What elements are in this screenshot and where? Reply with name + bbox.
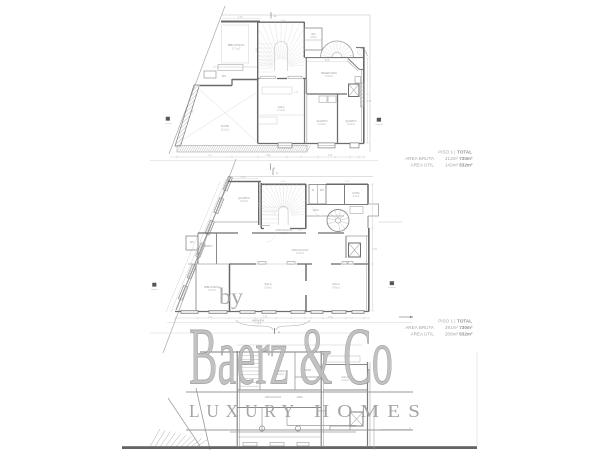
svg-text:4.15: 4.15 [241, 177, 246, 179]
svg-text:SUITE: SUITE [221, 124, 229, 128]
svg-text:11.5m2: 11.5m2 [208, 290, 216, 292]
svg-text:PISO 1 |: PISO 1 | [438, 150, 455, 155]
svg-text:QUARTO: QUARTO [238, 196, 249, 200]
svg-text:QUARTO: QUARTO [316, 119, 327, 123]
svg-text:QUARTO: QUARTO [345, 119, 356, 123]
svg-text:AREA BRUTA: AREA BRUTA [405, 156, 435, 161]
svg-text:IS: IS [312, 189, 315, 192]
svg-text:15.5m2: 15.5m2 [325, 76, 333, 78]
svg-text:WC: WC [320, 189, 324, 192]
svg-text:213m²: 213m² [445, 156, 458, 161]
svg-text:10.9m2: 10.9m2 [347, 124, 355, 126]
svg-text:PISO 1 |: PISO 1 | [438, 319, 455, 324]
svg-text:A: A [276, 171, 278, 175]
svg-text:CIRCULACAO: CIRCULACAO [275, 228, 292, 232]
svg-text:CIRCULACAO: CIRCULACAO [291, 248, 308, 252]
svg-text:by: by [219, 284, 244, 309]
svg-text:5.08: 5.08 [325, 60, 330, 62]
svg-text:A: A [274, 14, 276, 18]
svg-text:17.2m2: 17.2m2 [277, 110, 285, 112]
svg-text:AREA UTIL: AREA UTIL [411, 332, 435, 337]
svg-text:SALA: SALA [278, 105, 285, 109]
svg-text:WC: WC [190, 241, 194, 244]
svg-text:REFEICOES: REFEICOES [321, 71, 337, 75]
svg-text:TOTAL: TOTAL [457, 150, 472, 155]
svg-text:15.9m2: 15.9m2 [240, 201, 248, 203]
svg-text:208m²: 208m² [445, 332, 458, 337]
svg-text:730m²: 730m² [459, 156, 473, 161]
svg-text:COPA: COPA [352, 191, 360, 195]
svg-text:11.8m2: 11.8m2 [318, 124, 326, 126]
svg-text:2.40: 2.40 [328, 155, 333, 157]
svg-text:A: A [273, 166, 275, 170]
svg-text:SALA: SALA [264, 282, 271, 286]
svg-text:BIBLIOTECA: BIBLIOTECA [228, 43, 245, 47]
svg-text:Baerz & Co: Baerz & Co [189, 311, 393, 402]
svg-text:24.6m2: 24.6m2 [332, 288, 340, 290]
svg-text:TOTAL: TOTAL [457, 319, 472, 324]
svg-text:142m²: 142m² [445, 163, 458, 168]
svg-text:LUXURY: LUXURY [189, 401, 301, 421]
svg-text:8.2m2: 8.2m2 [353, 196, 360, 198]
svg-text:SALA: SALA [332, 282, 339, 286]
svg-text:HOMES: HOMES [314, 401, 428, 421]
svg-text:WC: WC [311, 32, 315, 36]
svg-text:BIBLIOTECA: BIBLIOTECA [204, 285, 220, 289]
svg-text:291m²: 291m² [445, 325, 458, 330]
svg-text:WC: WC [222, 75, 226, 78]
svg-text:730m²: 730m² [459, 325, 473, 330]
svg-text:27.5 m2: 27.5 m2 [232, 48, 241, 51]
svg-text:25.2m2: 25.2m2 [221, 129, 230, 132]
svg-text:4.78: 4.78 [372, 249, 377, 251]
svg-text:16.9m2: 16.9m2 [296, 253, 304, 255]
svg-text:AREA BRUTA: AREA BRUTA [405, 325, 435, 330]
svg-text:7.90: 7.90 [266, 155, 271, 157]
svg-text:532m²: 532m² [459, 332, 473, 337]
svg-text:5.10: 5.10 [367, 101, 372, 103]
svg-text:532m²: 532m² [459, 163, 473, 168]
svg-text:4.5m2: 4.5m2 [310, 37, 317, 39]
svg-text:4.75: 4.75 [238, 17, 243, 19]
svg-text:AREA UTIL: AREA UTIL [411, 163, 435, 168]
svg-text:27.8m2: 27.8m2 [264, 288, 272, 290]
